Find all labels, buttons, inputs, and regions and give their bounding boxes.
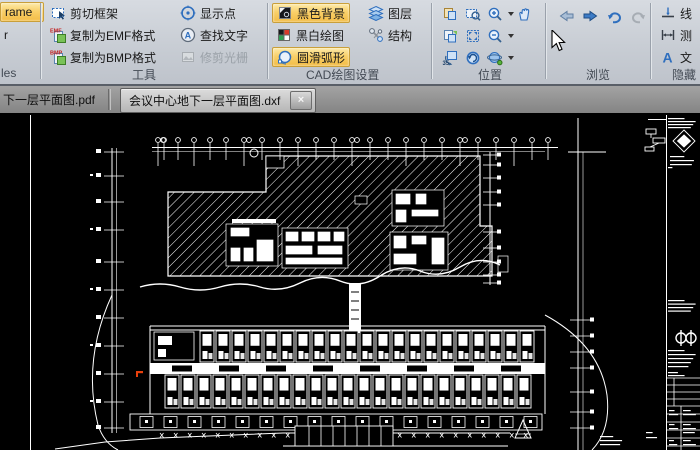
undo-icon [606, 8, 623, 24]
find-text-icon: A [180, 27, 196, 43]
browse-group-label: 浏览 [586, 66, 610, 83]
copy-bmp-button[interactable]: BMP 复制为BMP格式 [46, 47, 160, 67]
smooth-arc-toggle[interactable]: 圆滑弧形 [272, 47, 350, 67]
position-group-label: 位置 [478, 66, 502, 83]
partial-right-group-label: 隐藏 [672, 66, 700, 83]
partial-left-item-label: r [4, 28, 8, 42]
redo-view-button[interactable] [626, 6, 651, 26]
document-tabstrip: 下一层平面图.pdf 会议中心地下一层平面图.dxf × [0, 86, 700, 114]
red-annotation-mark [136, 371, 138, 377]
svg-text:BMP: BMP [50, 51, 63, 57]
forward-arrow-icon [582, 8, 599, 24]
layers-icon [368, 5, 384, 21]
left-dimension-chain [90, 148, 124, 433]
measure-tool-button[interactable]: 测 [656, 25, 696, 45]
redo-icon [630, 8, 647, 24]
zoom-out-dropdown[interactable] [508, 34, 514, 38]
layers-label: 图层 [388, 5, 412, 22]
zoom-out-icon [487, 28, 503, 44]
zoom-window-icon [465, 6, 481, 22]
bw-drawing-button[interactable]: 黑白绘图 [272, 25, 348, 45]
previous-view-icon [465, 50, 481, 66]
zoom-out-button[interactable] [483, 26, 518, 46]
find-text-button[interactable]: A 查找文字 [176, 25, 252, 45]
rotate-pages-button[interactable] [438, 4, 462, 24]
back-arrow-icon [558, 8, 575, 24]
partial-left-item[interactable]: r [0, 25, 12, 45]
fit-extents-icon [465, 28, 481, 44]
frame-button[interactable]: rame [0, 2, 44, 22]
svg-text:35: 35 [443, 61, 450, 66]
orbit-icon [487, 50, 503, 66]
tab-close-button[interactable]: × [290, 91, 312, 110]
black-background-icon [277, 5, 293, 21]
cad-settings-group-label: CAD绘图设置 [306, 66, 379, 83]
pan-hand-icon [516, 6, 532, 22]
pan-button[interactable] [512, 4, 536, 24]
show-points-icon [180, 5, 196, 21]
text-tool-label: 文 [680, 49, 692, 66]
trim-raster-label: 修剪光栅 [200, 49, 248, 66]
black-background-label: 黑色背景 [297, 5, 345, 22]
tab-pdf-document[interactable]: 下一层平面图.pdf [3, 91, 95, 108]
zoom-window-button[interactable] [461, 4, 485, 24]
ribbon: rame r les 剪切框架 EMF 复制为EMF格式 [0, 0, 700, 86]
structure-label: 结构 [388, 27, 412, 44]
structure-icon [368, 27, 384, 43]
partial-left-group-label: les [1, 66, 16, 80]
tab-separator [108, 89, 109, 110]
text-tool-button[interactable]: A 文 [656, 47, 696, 67]
trim-raster-icon [180, 49, 196, 65]
tab-dxf-document[interactable]: 会议中心地下一层平面图.dxf × [120, 88, 316, 113]
group-divider [431, 3, 433, 79]
cad-drawing-canvas[interactable] [0, 113, 700, 450]
show-points-label: 显示点 [200, 5, 236, 22]
frame-button-label: rame [5, 5, 32, 19]
cut-frame-button[interactable]: 剪切框架 [46, 3, 122, 23]
mouse-cursor [551, 30, 569, 54]
orbit-button[interactable] [483, 48, 518, 68]
text-icon: A [660, 49, 676, 65]
cut-frame-icon [50, 5, 66, 21]
app-window: rame r les 剪切框架 EMF 复制为EMF格式 [0, 0, 700, 450]
back-button[interactable] [554, 6, 579, 26]
copy-view-button[interactable] [438, 26, 462, 46]
svg-text:A: A [185, 30, 192, 40]
group-divider [267, 3, 269, 79]
corridor [150, 363, 545, 374]
title-block [600, 118, 700, 450]
copy-bmp-icon: BMP [50, 49, 66, 65]
group-divider [650, 3, 652, 79]
cut-frame-label: 剪切框架 [70, 5, 118, 22]
previous-view-button[interactable] [461, 48, 485, 68]
structure-button[interactable]: 结构 [364, 25, 416, 45]
find-text-label: 查找文字 [200, 27, 248, 44]
black-background-toggle[interactable]: 黑色背景 [272, 3, 350, 23]
smooth-arc-icon [277, 49, 293, 65]
lower-building [130, 326, 545, 446]
zoom-in-icon [487, 6, 503, 22]
tab-dxf-label: 会议中心地下一层平面图.dxf [129, 92, 290, 109]
split-line-icon [660, 5, 676, 21]
right-dimension-chain [568, 118, 606, 450]
measure-tool-label: 测 [680, 27, 692, 44]
copy-emf-label: 复制为EMF格式 [70, 27, 155, 44]
undo-view-button[interactable] [602, 6, 627, 26]
forward-button[interactable] [578, 6, 603, 26]
rotate-pages-icon [442, 6, 458, 22]
rotate-angle-button[interactable]: 35 [438, 48, 462, 68]
line-tool-button[interactable]: 线 [656, 3, 696, 23]
rotate-angle-icon: 35 [442, 50, 458, 66]
smooth-arc-label: 圆滑弧形 [297, 49, 345, 66]
bw-drawing-label: 黑白绘图 [296, 27, 344, 44]
line-tool-label: 线 [680, 5, 692, 22]
group-divider [545, 3, 547, 79]
show-points-button[interactable]: 显示点 [176, 3, 240, 23]
measure-icon [660, 27, 676, 43]
copy-emf-button[interactable]: EMF 复制为EMF格式 [46, 25, 159, 45]
upper-building [168, 149, 508, 276]
tools-group-label: 工具 [132, 66, 156, 83]
orbit-dropdown[interactable] [508, 56, 514, 60]
fit-extents-button[interactable] [461, 26, 485, 46]
copy-view-icon [442, 28, 458, 44]
svg-text:EMF: EMF [50, 29, 62, 35]
trim-raster-button[interactable]: 修剪光栅 [176, 47, 252, 67]
copy-bmp-label: 复制为BMP格式 [70, 49, 156, 66]
layers-button[interactable]: 图层 [364, 3, 416, 23]
bw-drawing-icon [276, 27, 292, 43]
svg-text:A: A [663, 50, 673, 66]
copy-emf-icon: EMF [50, 27, 66, 43]
group-divider [40, 3, 42, 79]
tab-separator [110, 89, 111, 110]
